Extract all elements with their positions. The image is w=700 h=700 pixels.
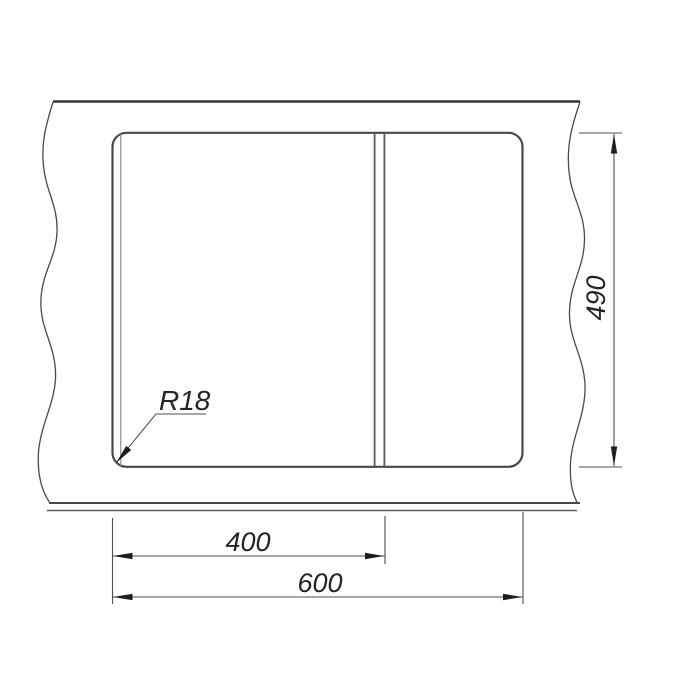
radius-leader-line [117, 414, 206, 462]
radius-leader-arrow [117, 446, 132, 463]
left-break-line [38, 102, 57, 503]
technical-drawing-page: 490 400 600 R18 [0, 0, 700, 700]
dim-400-arrow-right [365, 553, 385, 559]
cutout-rounded-rectangle [113, 133, 523, 467]
sink-cutout-dimension-drawing: 490 400 600 R18 [0, 0, 700, 700]
dim-490-arrow-up [611, 134, 617, 154]
radius-label: R18 [159, 385, 211, 416]
dim-600-arrow-left [113, 594, 133, 600]
dim-490-arrow-down [611, 447, 617, 467]
dim-600-arrow-right [503, 594, 523, 600]
dim-600-label: 600 [297, 568, 342, 598]
dim-490-label: 490 [581, 275, 611, 320]
dim-400-arrow-left [113, 553, 133, 559]
dim-400-label: 400 [225, 527, 270, 557]
